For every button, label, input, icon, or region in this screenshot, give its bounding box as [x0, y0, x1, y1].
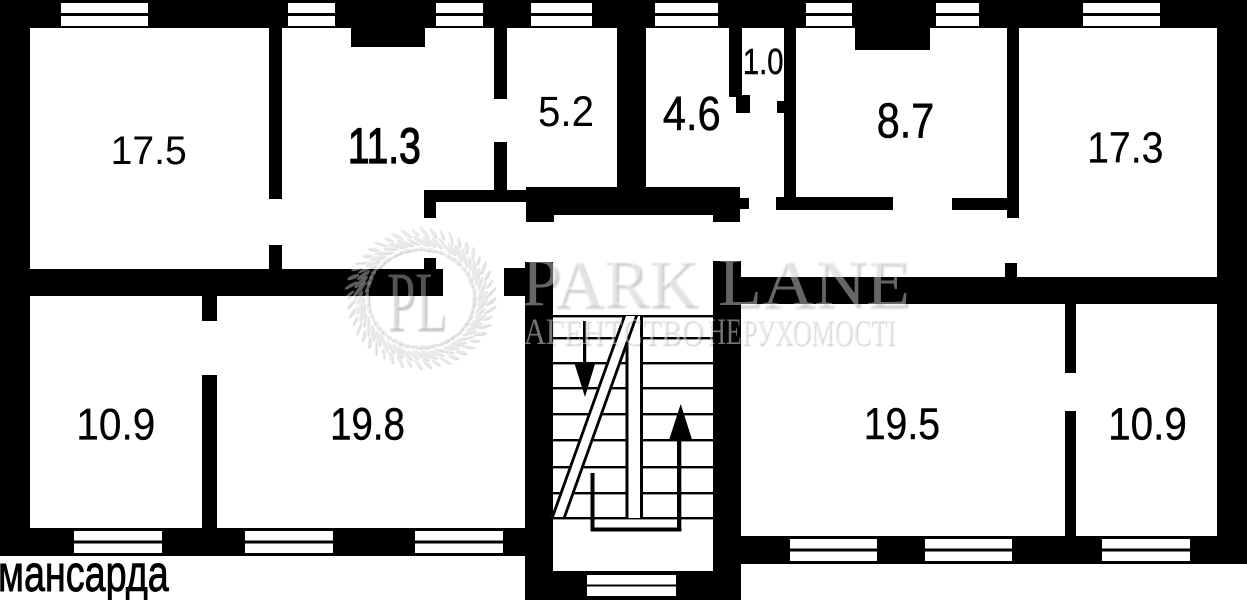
svg-text:11.3: 11.3 [348, 117, 421, 174]
svg-text:4.6: 4.6 [663, 86, 721, 140]
svg-text:19.8: 19.8 [330, 399, 405, 450]
svg-text:8.7: 8.7 [877, 93, 934, 148]
svg-text:19.5: 19.5 [864, 399, 940, 449]
svg-text:5.2: 5.2 [538, 88, 594, 135]
svg-text:1.0: 1.0 [743, 41, 784, 82]
svg-text:17.5: 17.5 [111, 129, 187, 173]
svg-text:10.9: 10.9 [76, 400, 155, 449]
svg-text:17.3: 17.3 [1087, 122, 1163, 171]
svg-text:10.9: 10.9 [1108, 400, 1187, 451]
svg-text:мансарда: мансарда [0, 544, 169, 600]
